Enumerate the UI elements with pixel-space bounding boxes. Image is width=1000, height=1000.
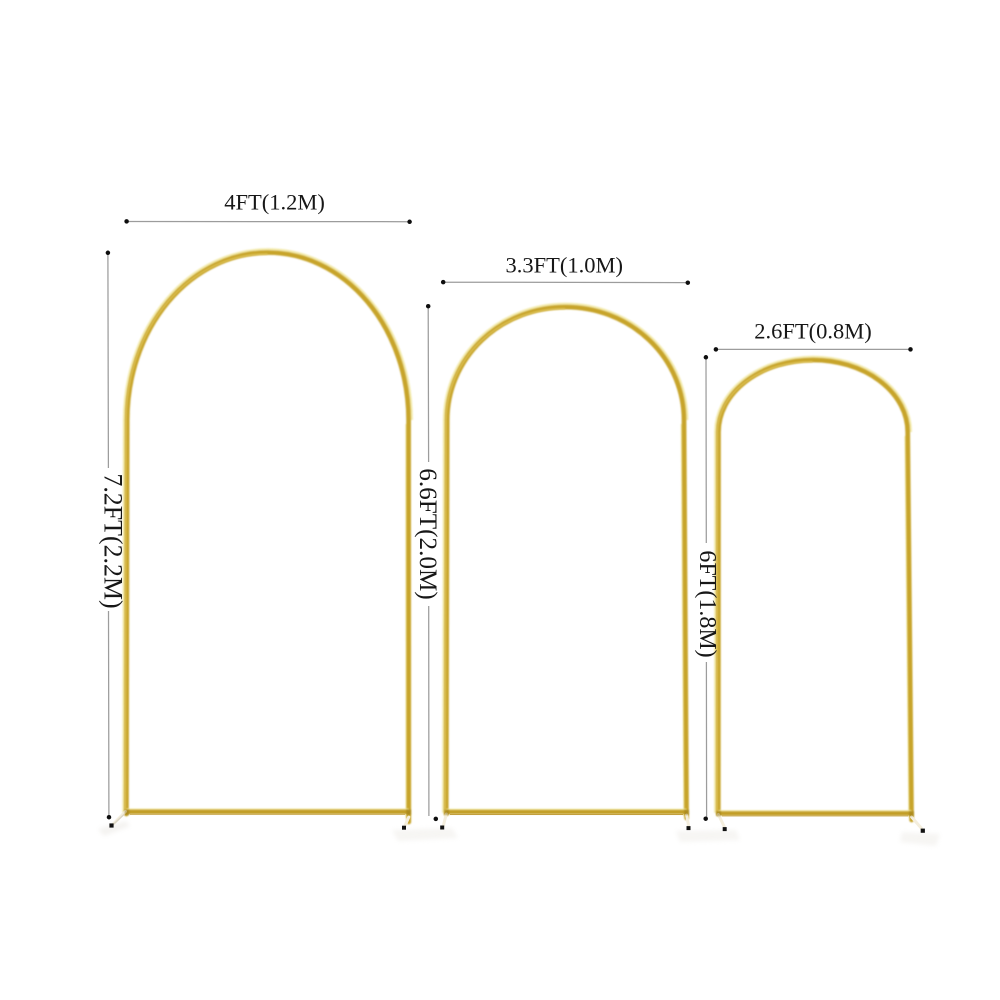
svg-text:4FT(1.2M): 4FT(1.2M)	[224, 190, 325, 215]
svg-text:6.6FT(2.0M): 6.6FT(2.0M)	[414, 468, 441, 600]
svg-text:3.3FT(1.0M): 3.3FT(1.0M)	[506, 253, 624, 278]
svg-text:6FT(1.8M): 6FT(1.8M)	[694, 550, 720, 657]
svg-text:7.2FT(2.2M): 7.2FT(2.2M)	[98, 473, 127, 608]
svg-text:2.6FT(0.8M): 2.6FT(0.8M)	[754, 319, 872, 344]
